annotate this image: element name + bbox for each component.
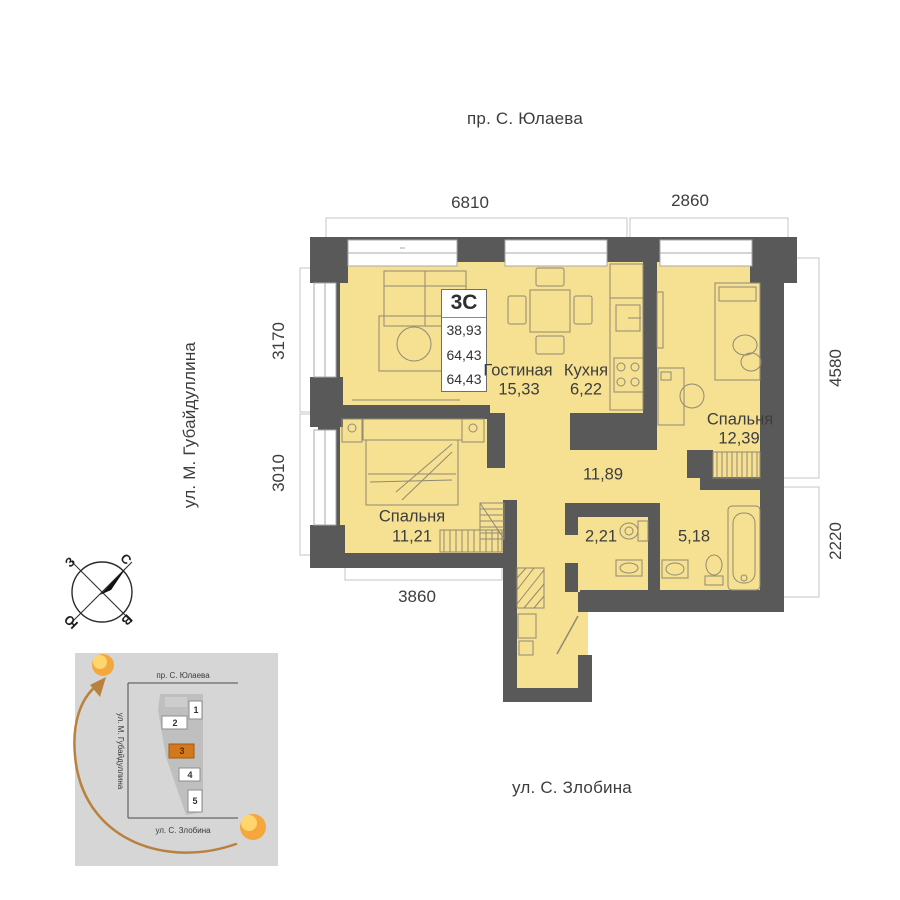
room-area-wc: 2,21 [585,528,617,545]
apartment-info-card: 3С 38,93 64,43 64,43 [441,289,487,392]
dimension-right-upper: 4580 [827,349,845,387]
room-label-living: Гостиная [483,362,552,379]
street-label-top: пр. С. Юлаева [467,110,583,128]
dimension-left-lower: 3010 [270,454,288,492]
minimap-block-1-label: 1 [193,705,198,715]
apartment-area-living: 38,93 [442,318,486,342]
minimap-sun-top-icon [92,654,114,676]
dimension-right-lower: 2220 [827,522,845,560]
room-area-hallway: 11,89 [583,466,623,483]
minimap-block-4-label: 4 [187,770,192,780]
room-area-bedroom-right: 12,39 [718,430,759,447]
minimap-street-bottom-label: ул. С. Злобина [155,827,210,835]
street-label-bottom: ул. С. Злобина [512,779,632,797]
floorplan-page: { "streets": { "top": "пр. С. Юлаева", "… [0,0,900,900]
room-label-kitchen: Кухня [564,362,608,379]
minimap-block-5-label: 5 [192,796,197,806]
room-area-bathroom: 5,18 [678,528,710,545]
dimension-top-right: 2860 [671,192,709,210]
apartment-area-total: 64,43 [442,342,486,366]
room-label-bedroom-left: Спальня [379,508,445,525]
apartment-type-label: 3С [442,290,486,318]
street-label-left: ул. М. Губайдуллина [181,342,199,508]
minimap-street-top-label: пр. С. Юлаева [156,672,209,680]
dimension-bottom: 3860 [398,588,436,606]
minimap-block-3-label: 3 [179,746,184,756]
dimension-left-upper: 3170 [270,322,288,360]
room-area-living: 15,33 [498,381,539,398]
room-area-kitchen: 6,22 [570,381,602,398]
room-area-bedroom-left: 11,21 [392,528,432,545]
apartment-area-total-reduced: 64,43 [442,367,486,391]
minimap-sun-bottom-icon [240,814,266,840]
dimension-top-left: 6810 [451,194,489,212]
floor-plan-canvas [0,0,900,900]
minimap-block-2-label: 2 [172,718,177,728]
minimap-street-left-label: ул. М. Губайдуллина [116,713,124,789]
room-label-bedroom-right: Спальня [707,411,773,428]
